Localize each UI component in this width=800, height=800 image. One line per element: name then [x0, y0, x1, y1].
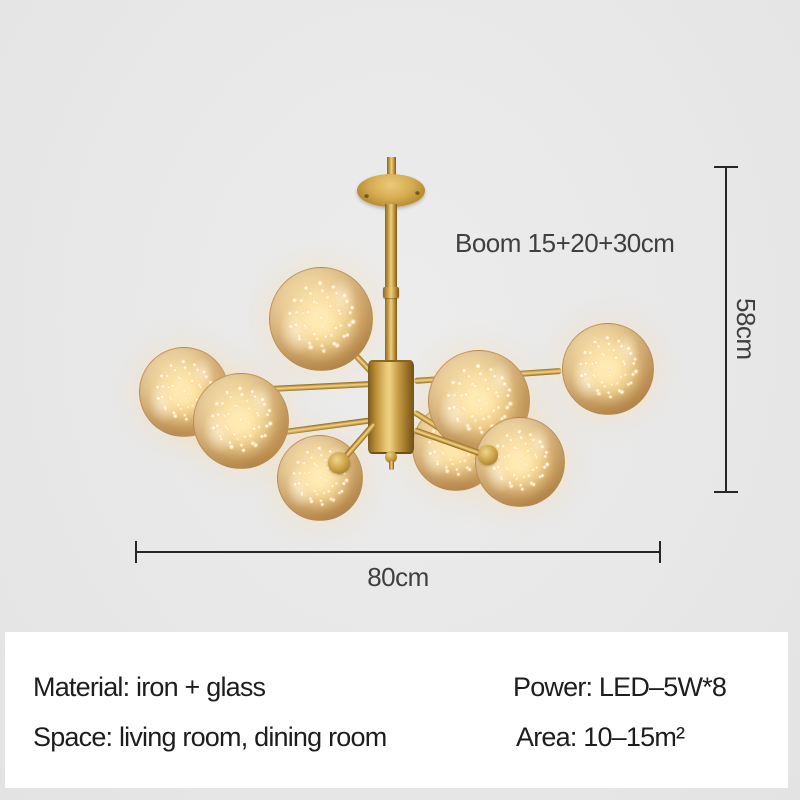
spec-space: Space: living room, dining room	[33, 722, 386, 753]
width-dimension-tick-left	[135, 541, 137, 563]
height-dimension-tick-top	[714, 166, 738, 168]
product-image-page: { "figure": { "description": "Gold sputn…	[0, 0, 800, 800]
glass-globe	[193, 373, 289, 469]
glass-globe	[269, 267, 373, 371]
width-dimension-tick-right	[659, 541, 661, 563]
downrod	[385, 204, 397, 362]
canopy-screw-left	[364, 193, 369, 198]
led-string-lights	[198, 378, 285, 465]
chandelier-photo	[0, 0, 800, 620]
boom-dimension-label: Boom 15+20+30cm	[455, 228, 674, 259]
spec-area: Area: 10–15m²	[516, 722, 684, 753]
chandelier-arm	[276, 417, 374, 436]
glass-globe	[562, 323, 654, 415]
height-dimension-tick-bottom	[714, 491, 738, 493]
central-hub	[368, 360, 414, 454]
canopy-screw-right	[415, 190, 420, 195]
width-dimension-label: 80cm	[336, 562, 460, 593]
led-string-lights	[567, 328, 650, 411]
height-dimension-label: 58cm	[730, 298, 761, 360]
led-string-lights	[274, 272, 368, 366]
downrod-coupler	[383, 287, 399, 298]
height-dimension-line	[725, 167, 727, 492]
spec-material: Material: iron + glass	[33, 672, 265, 703]
width-dimension-line	[136, 551, 660, 553]
spec-power: Power: LED–5W*8	[513, 672, 726, 703]
spec-panel: Material: iron + glass Power: LED–5W*8 S…	[5, 632, 788, 788]
globe-mount-cap	[478, 445, 498, 465]
hub-finial-pin	[389, 461, 394, 470]
globe-mount-cap	[328, 452, 350, 474]
